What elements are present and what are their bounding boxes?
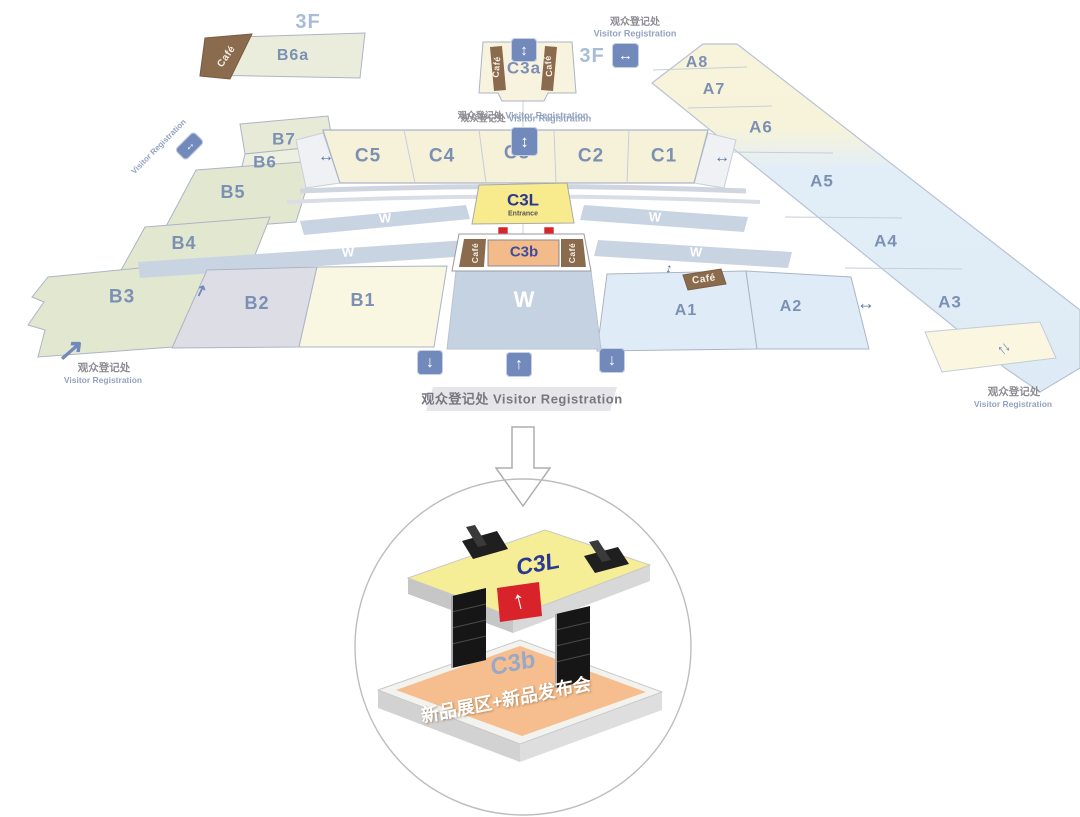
hall-c3l-entrance-label: Entrance <box>508 211 538 218</box>
down-arrow-icon-left: ↓ <box>417 350 443 375</box>
registration-bar-label: 观众登记处 Visitor Registration <box>421 393 622 406</box>
hall-c3b-label: C3b <box>510 245 538 260</box>
hall-b6a-label: B6a <box>277 48 309 64</box>
hall-a2-shape <box>746 271 869 349</box>
registration-label-bottomleft-en: Visitor Registration <box>64 376 142 385</box>
hall-a6-label: A6 <box>749 119 773 136</box>
floor-label-top-left: 3F <box>295 12 320 32</box>
down-glyph: ↓ <box>426 354 434 372</box>
hall-a5-label: A5 <box>810 173 834 190</box>
detail-pointer-arrow <box>496 427 550 506</box>
registration-label-c3: 观众登记处 Visitor Registration <box>461 115 591 124</box>
updown-arrow-icon-c3: ↕ <box>511 127 538 156</box>
hall-b1-label: B1 <box>350 291 375 309</box>
down-glyph: ↓ <box>608 352 616 370</box>
registration-label-topright-en: Visitor Registration <box>594 30 677 39</box>
hall-a2-label: A2 <box>780 299 802 315</box>
hall-a4-label: A4 <box>874 233 898 250</box>
up-arrow-icon-center: ↑ <box>506 352 532 377</box>
hall-b3-label: B3 <box>109 288 135 307</box>
registration-label-bottomleft-zh: 观众登记处 <box>78 363 131 374</box>
updown-glyph: ↕ <box>520 132 529 152</box>
leftright-glyph: ↔ <box>618 47 633 64</box>
escalator-arrow-icon-bottom-left: ↗ <box>56 336 85 366</box>
walkway-label-3: W <box>342 245 355 259</box>
floor-plan: 3F B6a Café C3a Café Café 3F 观众登记处 Visit… <box>0 0 1080 817</box>
hall-a7-label: A7 <box>703 82 725 98</box>
leftright-arrow-icon-topright: ↔ <box>612 43 639 68</box>
hall-a8-label: A8 <box>686 55 708 71</box>
cafe-c3a-left-label: Café <box>492 56 503 78</box>
cafe-c3a-right-label: Café <box>544 55 555 77</box>
hall-c4-label: C4 <box>429 147 455 166</box>
hall-c1-label: C1 <box>651 147 677 166</box>
registration-zh: 观众登记处 <box>461 114 506 124</box>
cafe-c3b-left-label: Café <box>471 243 480 263</box>
escalator-column-left <box>452 588 486 668</box>
hall-b6-label: B6 <box>253 154 277 171</box>
walkway-strip-right-upper <box>580 205 748 232</box>
registration-zh: 观众登记处 <box>421 392 489 407</box>
leftright-arrow-icon-a2-a3: ↔ <box>857 294 875 312</box>
registration-label-bottomright-en: Visitor Registration <box>974 400 1052 409</box>
down-arrow-icon-right: ↓ <box>599 348 625 373</box>
hall-a3-label: A3 <box>938 294 962 311</box>
hall-b7-label: B7 <box>272 131 296 148</box>
registration-label-bottomright-zh: 观众登记处 <box>988 387 1041 398</box>
hall-c5-label: C5 <box>355 147 381 166</box>
hall-b5-label: B5 <box>220 183 245 201</box>
updown-glyph: ↕ <box>520 42 528 59</box>
leftright-arrow-icon-b6: ↔ <box>318 149 334 165</box>
hall-c3l-label: C3L <box>507 192 539 209</box>
hall-c2-label: C2 <box>578 147 604 166</box>
walkway-label-1: W <box>378 211 391 225</box>
walkway-label-center: W <box>514 289 535 311</box>
hall-a1-label: A1 <box>675 303 697 319</box>
walkway-label-2: W <box>648 210 661 224</box>
registration-en: Visitor Registration <box>508 114 591 124</box>
hall-b4-label: B4 <box>171 234 196 252</box>
walkway-label-4: W <box>690 245 703 259</box>
updown-arrow-icon-c3a: ↕ <box>511 38 537 62</box>
hall-b2-label: B2 <box>244 294 269 312</box>
up-glyph: ↑ <box>515 356 523 374</box>
hall-c3a-label: C3a <box>507 60 541 77</box>
registration-en: Visitor Registration <box>493 392 623 407</box>
floor-label-c3a: 3F <box>579 46 604 66</box>
leftright-arrow-icon-c1-a5: ↔ <box>714 150 730 166</box>
registration-label-topright-zh: 观众登记处 <box>610 18 660 28</box>
cafe-c3b-right-label: Café <box>568 243 577 263</box>
